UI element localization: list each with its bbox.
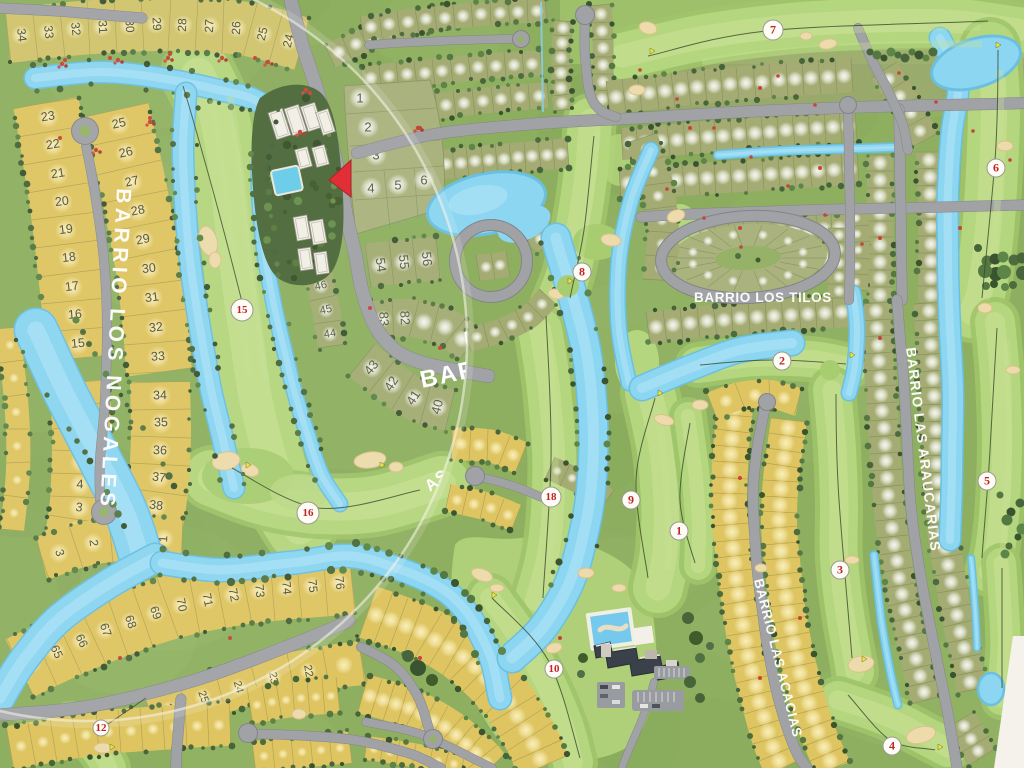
svg-text:15: 15: [237, 304, 249, 316]
svg-text:4: 4: [889, 738, 895, 752]
svg-text:18: 18: [546, 491, 558, 503]
svg-text:10: 10: [549, 663, 561, 675]
svg-text:12: 12: [96, 722, 108, 734]
svg-text:16: 16: [303, 507, 315, 519]
svg-text:6: 6: [993, 160, 999, 174]
svg-text:2: 2: [779, 353, 785, 367]
svg-text:9: 9: [628, 492, 634, 506]
svg-text:8: 8: [579, 264, 585, 278]
svg-text:7: 7: [770, 22, 776, 36]
svg-text:5: 5: [984, 473, 990, 487]
svg-text:3: 3: [837, 562, 843, 576]
svg-text:1: 1: [676, 523, 682, 537]
svg-text:BARRIO LOS TILOS: BARRIO LOS TILOS: [694, 290, 832, 305]
